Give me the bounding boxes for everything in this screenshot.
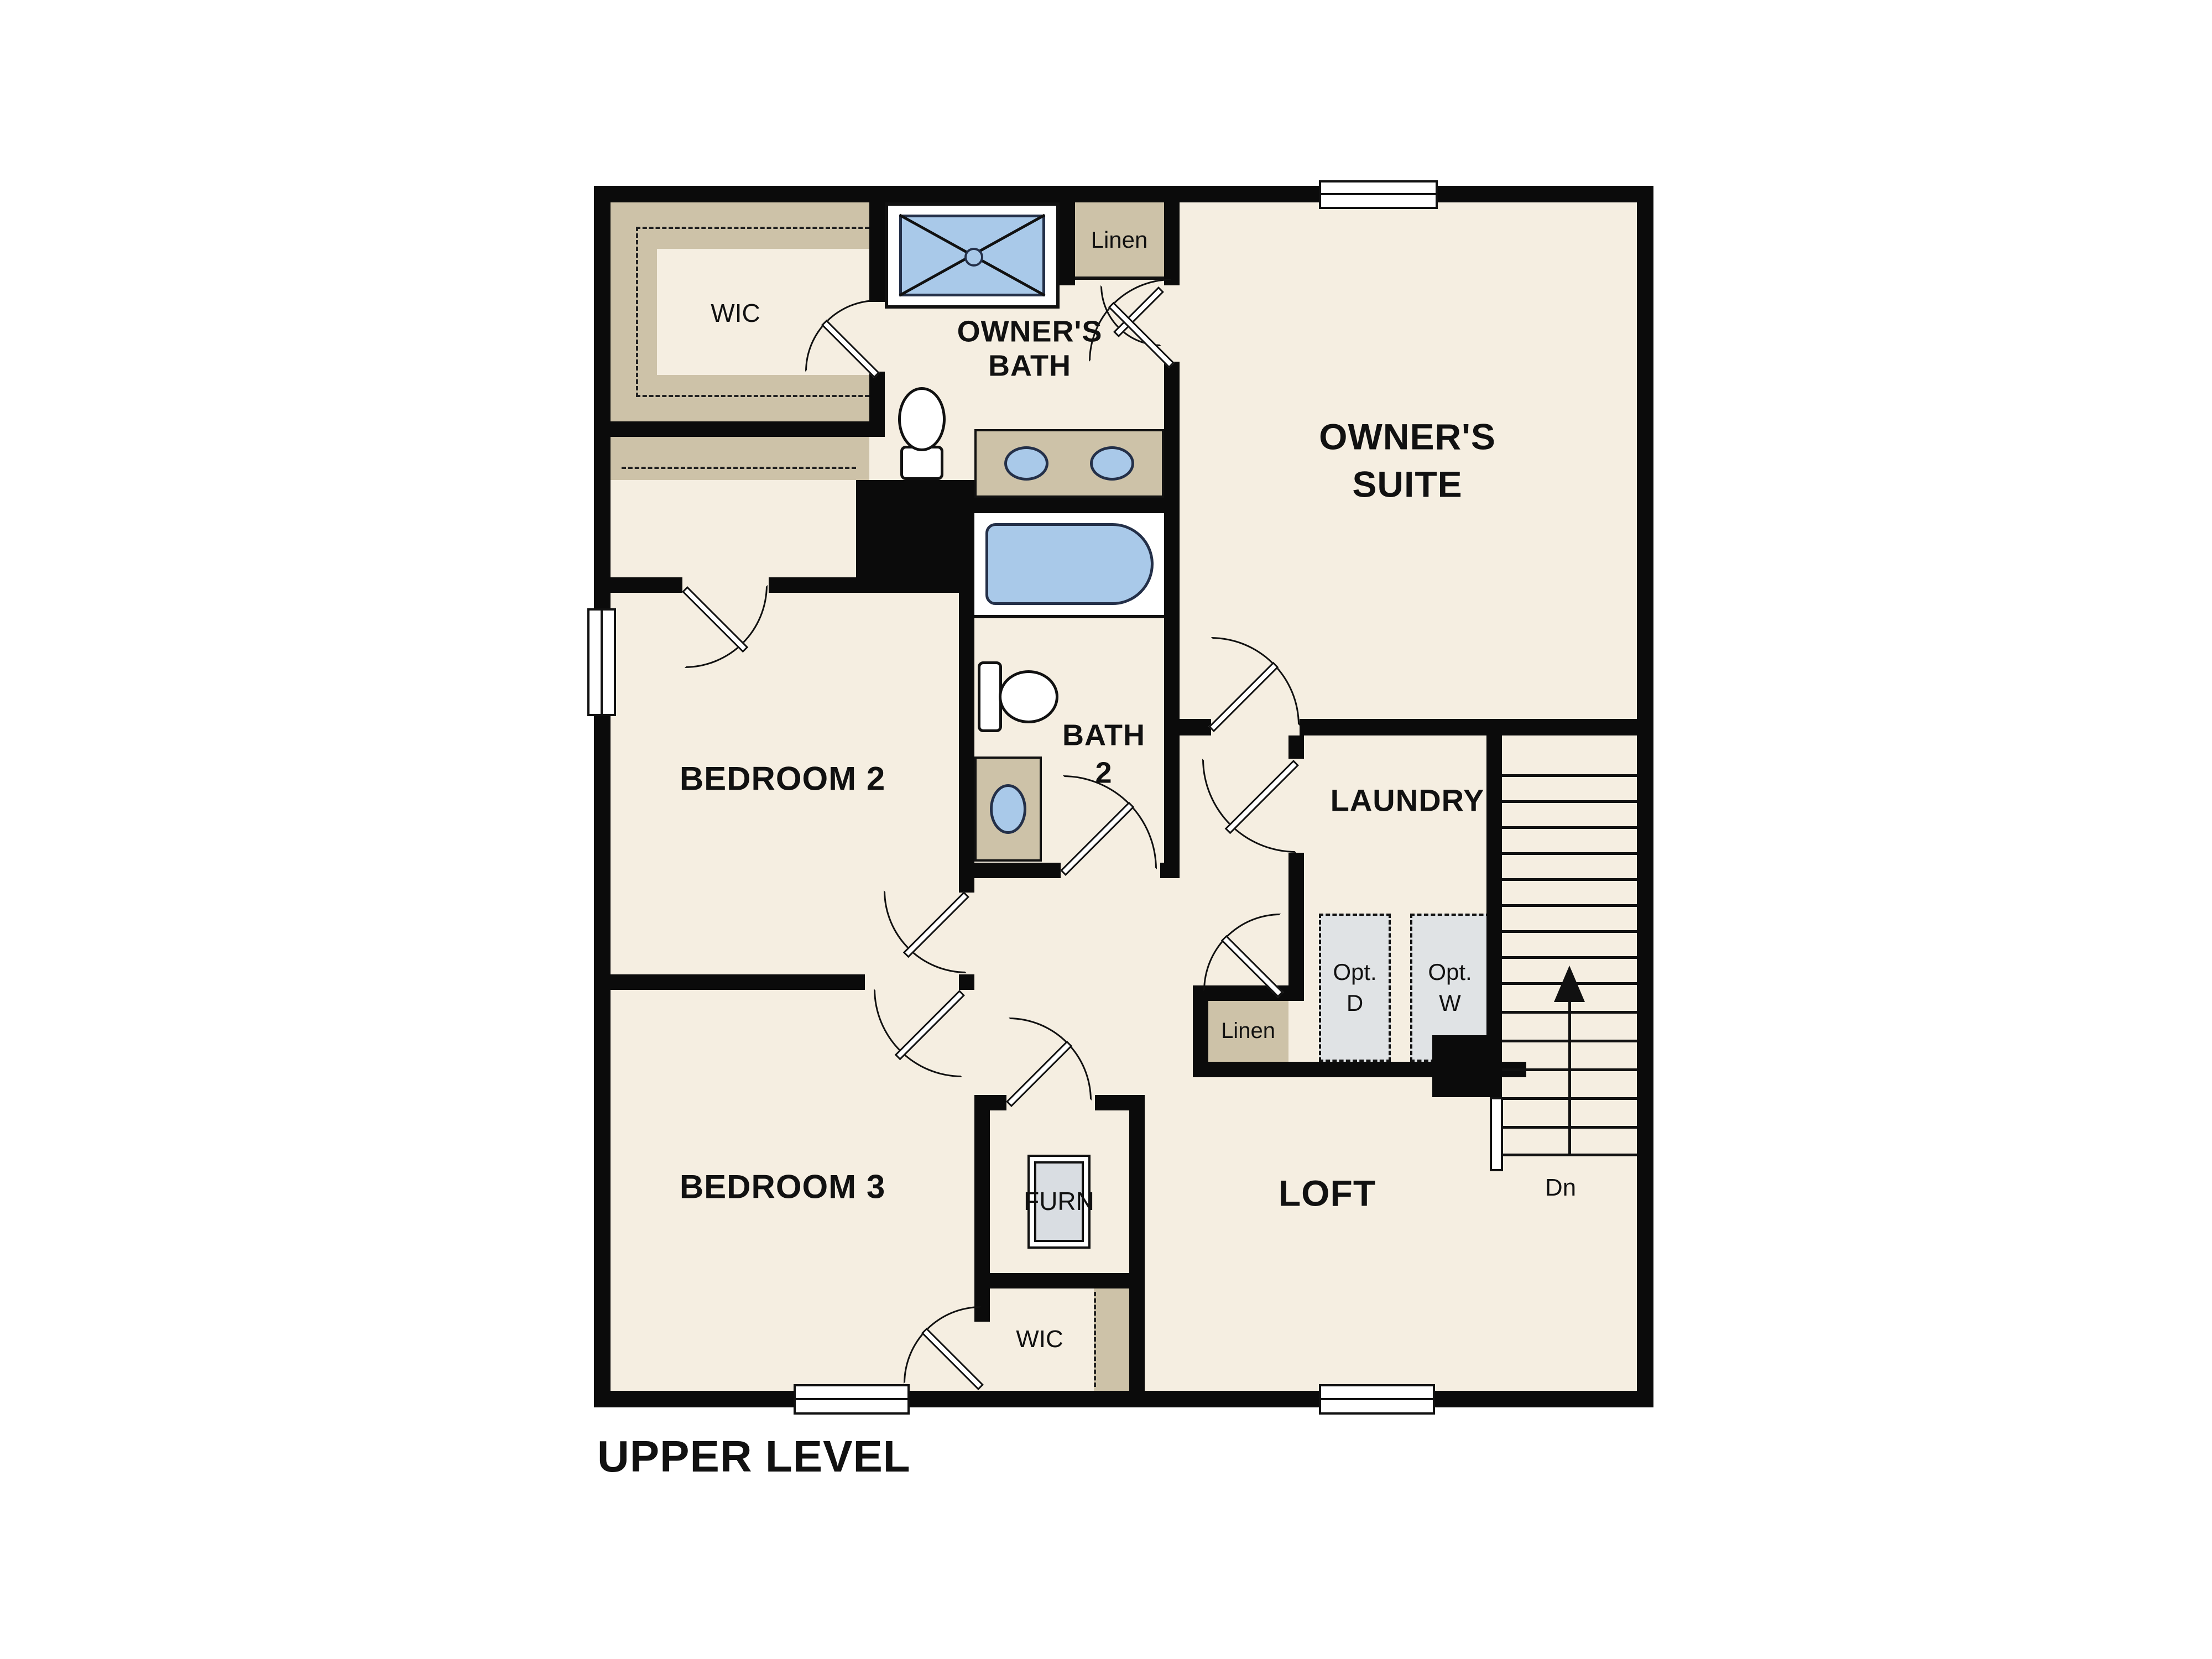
- outer-wall-bottom: [594, 1391, 1653, 1407]
- wic-bed3-dash: [1094, 1292, 1096, 1387]
- stair-tread: [1502, 878, 1637, 881]
- room-label-bedroom2: BEDROOM 2: [680, 761, 885, 796]
- sink-icon: [1090, 446, 1134, 481]
- equipment-label-opt-w-2: W: [1439, 991, 1461, 1015]
- wall-divider-top: [1164, 202, 1180, 285]
- stairs-down-label: Dn: [1545, 1175, 1576, 1201]
- toilet-icon: [898, 387, 946, 451]
- wall-furn-bottom: [974, 1273, 1145, 1288]
- wall-wic-bottom: [611, 421, 885, 437]
- wall-bedroom2-top-left: [611, 577, 682, 593]
- room-label-loft: LOFT: [1279, 1174, 1376, 1212]
- equipment-label-opt-w-1: Opt.: [1428, 960, 1472, 984]
- room-label-owners-suite-1: OWNER'S: [1319, 418, 1496, 456]
- stair-tread: [1502, 826, 1637, 829]
- wic-shelf-dash-bottom: [636, 395, 869, 397]
- vanity-counter: [974, 429, 1164, 498]
- outer-wall-right: [1637, 186, 1653, 1407]
- wall-bedroom-divider: [611, 974, 865, 990]
- room-label-bath2-1: BATH: [1062, 720, 1145, 752]
- sink-icon: [1004, 446, 1048, 481]
- wall-linen-left: [1060, 202, 1075, 285]
- tub-icon: [985, 523, 1154, 605]
- room-label-owners-bath-1: OWNER'S: [957, 316, 1103, 348]
- floorplan-canvas: WIC BEDROOM 2 OWNER'S BATH Linen OWNER'S…: [0, 0, 2212, 1659]
- wall-laundry-left: [1288, 853, 1304, 985]
- wall-suite-bottom-left-stub: [1180, 719, 1211, 735]
- room-label-owners-bath-2: BATH: [988, 351, 1071, 382]
- wic-bed3-shelf: [1094, 1288, 1129, 1391]
- wall-bedroom2-top-right: [769, 577, 869, 593]
- toilet-icon: [999, 670, 1058, 723]
- wall-tubroom-top: [974, 498, 1180, 513]
- wic-shelf-dash-top: [636, 227, 869, 229]
- linen-top-front: [1075, 276, 1164, 280]
- wall-suite-bottom: [1300, 719, 1637, 735]
- wall-stairs-left: [1486, 735, 1502, 1078]
- room-label-laundry: LAUNDRY: [1331, 785, 1485, 817]
- tubroom-bottom-line: [974, 615, 1164, 618]
- window-mullion: [1321, 1398, 1433, 1400]
- page-title: UPPER LEVEL: [597, 1431, 911, 1482]
- room-label-wic-bed3: WIC: [1016, 1327, 1063, 1352]
- room-label-bedroom3: BEDROOM 3: [680, 1170, 885, 1204]
- outer-wall-top: [594, 186, 1653, 202]
- window-mullion: [601, 611, 603, 714]
- stair-center-divider: [1568, 990, 1571, 1156]
- outer-wall-left: [594, 186, 611, 1407]
- stair-tread: [1502, 904, 1637, 907]
- stair-tread: [1502, 774, 1637, 777]
- wall-bath2-bottom-right: [1160, 863, 1180, 878]
- stair-tread: [1502, 852, 1637, 855]
- equipment-label-opt-d-2: D: [1347, 991, 1363, 1015]
- wall-linen-hall-bottom: [1193, 1062, 1304, 1077]
- stair-tread: [1502, 930, 1637, 933]
- wall-stairs-landing-block: [1432, 1035, 1502, 1097]
- wall-chase-black: [856, 480, 974, 593]
- stair-tread: [1502, 800, 1637, 803]
- wall-bedroom-divider-stub: [959, 974, 974, 990]
- bedroom2-closet-dash: [622, 467, 856, 469]
- equipment-label-opt-d-1: Opt.: [1333, 960, 1376, 984]
- wall-bath2-bottom-left: [959, 863, 1061, 878]
- wall-bath2-left: [959, 498, 974, 893]
- wall-wic-right-lower: [869, 372, 885, 421]
- bedroom2-closet-shelf: [611, 437, 869, 480]
- room-label-owners-suite-2: SUITE: [1352, 465, 1462, 503]
- up-arrow-icon: [1554, 966, 1585, 1002]
- wic-shelf-dash-left: [636, 227, 638, 397]
- wall-laundry-left-stub: [1288, 735, 1304, 759]
- closet-label-linen-top: Linen: [1091, 228, 1148, 252]
- room-label-wic-owner: WIC: [711, 300, 760, 326]
- stair-tread: [1502, 956, 1637, 959]
- wall-wic-right-upper: [869, 202, 885, 302]
- wall-divider-main: [1164, 362, 1180, 878]
- window-mullion: [796, 1398, 907, 1400]
- wall-furn-right: [1129, 1095, 1145, 1391]
- sink-icon: [990, 784, 1026, 834]
- wall-furn-left: [974, 1095, 990, 1288]
- window-mullion: [1321, 193, 1436, 195]
- stair-railing: [1490, 1097, 1503, 1171]
- shower-drain: [964, 248, 983, 267]
- dryer-icon: [1319, 914, 1391, 1062]
- wall-furn-top-left: [990, 1095, 1006, 1110]
- equipment-label-furn: FURN: [1024, 1188, 1094, 1214]
- closet-label-linen-hall: Linen: [1221, 1019, 1275, 1042]
